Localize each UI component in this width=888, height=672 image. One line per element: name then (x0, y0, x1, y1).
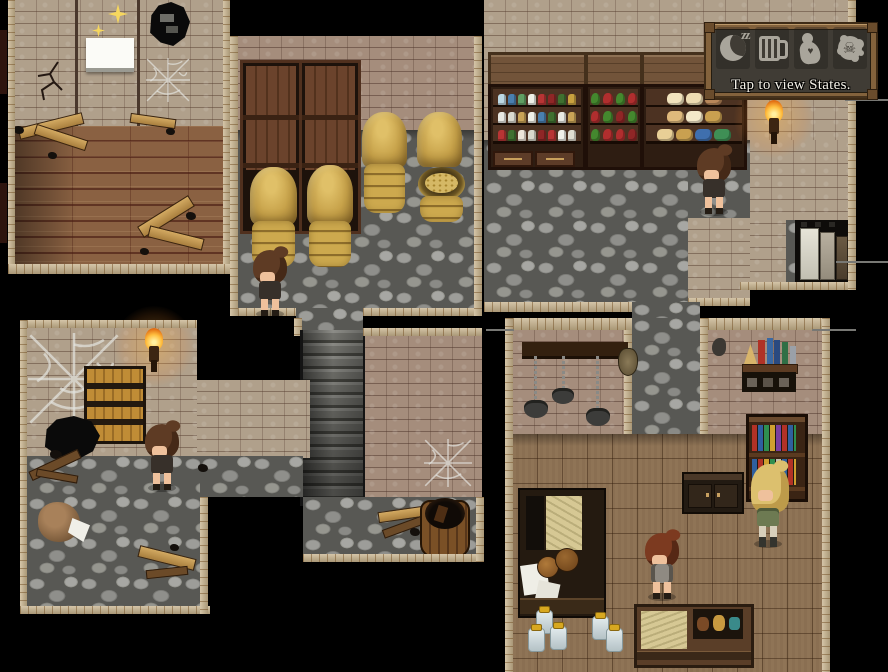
drink-icon (755, 27, 789, 69)
map-connector-line (812, 329, 856, 331)
shelf-item (538, 94, 546, 105)
tray-item (697, 617, 709, 631)
alcove (795, 220, 848, 282)
appliance-brown (836, 236, 848, 280)
shelf-item (558, 112, 566, 123)
brick-wall (197, 380, 310, 458)
shelf-item (508, 94, 516, 105)
broken-barrel (420, 500, 470, 558)
vent (801, 222, 807, 227)
figure-icon: ♥ (794, 27, 828, 69)
states-panel-caption: Tap to view States. (706, 77, 876, 94)
states-panel[interactable]: zz ♥ ☠ Tap to view States. (704, 22, 878, 100)
grain-sack (362, 112, 407, 168)
shelf-row (590, 89, 638, 105)
rubble-rock (198, 464, 208, 472)
map-connector-line (486, 329, 514, 331)
chain (562, 356, 565, 392)
shelf-book (774, 340, 780, 364)
rubble-rock (140, 248, 149, 255)
shelf-item (518, 112, 526, 123)
shelf-book (782, 342, 788, 364)
map-edge-fragment (0, 30, 7, 94)
grain-sack (364, 164, 405, 213)
room-border (8, 264, 230, 274)
wall-crack (28, 60, 68, 102)
shelf-item (548, 112, 556, 123)
room-border (8, 0, 15, 272)
room-border (624, 318, 632, 436)
cobblestone-path (632, 318, 700, 438)
drawer[interactable] (535, 151, 575, 167)
shelf-row (590, 125, 638, 141)
shelf-item (548, 130, 556, 141)
stone-trim (786, 220, 795, 282)
rubble-rock (48, 152, 57, 159)
tray-item (729, 617, 740, 630)
shelf-item (548, 94, 556, 105)
vent (829, 222, 835, 227)
beer-mug-shape (759, 36, 780, 61)
figure-shape: ♥ (799, 33, 825, 65)
shelf-item (498, 94, 506, 105)
hanging-pot (552, 388, 574, 404)
shelf-item (628, 111, 637, 123)
room-study (505, 318, 830, 672)
shelf-item (528, 130, 536, 141)
hanging-pot (524, 400, 548, 418)
sleep-icon: zz (716, 27, 750, 69)
cabinet-top (684, 474, 742, 480)
rubble-rock (166, 128, 175, 135)
appliance-grey (820, 232, 835, 280)
room-border (27, 320, 197, 328)
shelf-item (508, 130, 516, 141)
wall-seam (75, 0, 78, 126)
lumber-band (87, 383, 143, 389)
hanging-gourd (618, 348, 638, 376)
shelf-item (508, 112, 516, 123)
room-border (20, 606, 210, 614)
shelf-item (705, 111, 722, 123)
room-border (700, 318, 708, 436)
room-grain-storage (230, 36, 482, 316)
shelf-item (558, 94, 566, 105)
shelf-item (528, 112, 536, 123)
appliance-white (800, 228, 819, 280)
stored-box (779, 378, 789, 387)
shelf-item (498, 112, 506, 123)
bottle-shelf (585, 84, 643, 170)
wall-seam (137, 0, 140, 126)
shelf-item (686, 111, 703, 123)
stored-box (763, 378, 773, 387)
shelf-item (628, 129, 637, 141)
cabinet-handle (717, 493, 720, 497)
room-border (303, 554, 482, 562)
wall-hole-bricks (166, 26, 178, 33)
character-villager-storage[interactable] (250, 248, 290, 318)
room-border (476, 497, 484, 562)
room-border (505, 318, 632, 330)
room-border (822, 318, 830, 672)
character-adventurer-blonde[interactable] (748, 462, 788, 548)
shelf-item (498, 130, 506, 141)
vent (815, 222, 821, 227)
shelf-item (628, 93, 637, 105)
shelf-item (616, 129, 625, 141)
skull-splat-shape: ☠ (838, 36, 862, 60)
desk-slot (526, 496, 544, 550)
shelf-item (686, 93, 703, 105)
shelf-item (667, 111, 684, 123)
shelf-drawers (490, 151, 578, 167)
shelf-item (603, 111, 612, 123)
poison-icon: ☠ (833, 27, 867, 69)
grain-sack (417, 112, 462, 167)
shelf-item (558, 130, 566, 141)
shelf-row (493, 125, 581, 141)
wall-bird (712, 338, 726, 356)
hanging-pot (586, 408, 610, 426)
table-tray (693, 609, 743, 639)
rubble-rock (170, 544, 179, 551)
shelf-divider (749, 453, 805, 457)
shelf-item (616, 93, 625, 105)
drawer[interactable] (493, 151, 533, 167)
cabinet-handle (706, 493, 709, 497)
grain (425, 173, 458, 193)
sleep-zz: zz (741, 27, 749, 43)
cabinet (682, 472, 744, 514)
clay-jug (555, 548, 579, 572)
room-border (505, 318, 513, 672)
tray-item (713, 615, 725, 631)
table-map (641, 611, 687, 649)
panel-rail (243, 115, 299, 120)
wall-hole-bricks (160, 14, 174, 22)
spider-web (142, 58, 194, 102)
room-border (363, 328, 482, 336)
shelf-book (790, 346, 796, 364)
shelf-item (538, 112, 546, 123)
character-villager-study[interactable] (642, 531, 682, 601)
wall-torch (760, 100, 788, 150)
storage-jar (606, 628, 623, 652)
shelf-item (528, 94, 536, 105)
room-border (740, 282, 856, 290)
book-row (752, 425, 796, 451)
shelf-item (695, 129, 712, 141)
shelf-row (646, 125, 742, 141)
shelf-item (591, 129, 600, 141)
shelf-row (493, 107, 581, 123)
rubble-rock (186, 212, 196, 220)
rubble-rock (410, 528, 420, 536)
shelf-item (657, 129, 674, 141)
character-villager-shop[interactable] (694, 146, 734, 216)
room-border (200, 497, 208, 614)
map-connector-line (836, 261, 888, 263)
grain-sack (307, 165, 353, 225)
room-border (474, 36, 482, 316)
hanging-beam (522, 342, 628, 359)
shelf-item (538, 130, 546, 141)
character-villager-cellar[interactable] (142, 422, 182, 492)
shelf-item (518, 130, 526, 141)
shelf-item (591, 111, 600, 123)
room-border (230, 36, 238, 316)
shelf-book (767, 338, 773, 364)
storage-jar (550, 626, 567, 650)
grain-sack (309, 221, 351, 267)
shelf-item (603, 129, 612, 141)
grain-sack (250, 167, 297, 225)
floor-shadow (15, 126, 77, 264)
grain-sack (420, 196, 463, 222)
cobblestone-floor (200, 456, 303, 497)
bookshelf-top (749, 417, 805, 422)
room-border (363, 308, 474, 316)
lumber-band (87, 419, 143, 425)
rubble-rock (14, 126, 24, 134)
shelf-item (568, 130, 576, 141)
shelf-item (568, 112, 576, 123)
desk-map (546, 496, 582, 550)
shelf-row (646, 107, 742, 123)
shelf-book (758, 340, 765, 364)
under-shelf (742, 372, 796, 392)
shelf-row (590, 107, 638, 123)
desk-front (520, 598, 604, 614)
shelf-item (676, 129, 693, 141)
heart-mark: ♥ (808, 47, 814, 57)
shelf-item (568, 94, 576, 105)
stored-box (747, 378, 757, 387)
panel-rail (302, 115, 358, 120)
notice-desk (518, 488, 606, 618)
shelf-item (518, 94, 526, 105)
shelf-row (493, 89, 581, 105)
shelf-item (667, 93, 684, 105)
room-border (484, 302, 632, 312)
storage-jar (528, 628, 545, 652)
room-cellar (20, 318, 484, 616)
status-icon-row: zz ♥ ☠ (710, 27, 872, 69)
table-apron (637, 651, 751, 660)
spider-web (424, 438, 472, 488)
room-border (20, 320, 27, 614)
game-viewport: zz ♥ ☠ Tap to view States. (0, 0, 888, 672)
notice-sign (86, 38, 134, 72)
room-border (223, 0, 230, 272)
shelf-item (591, 93, 600, 105)
chain (534, 356, 537, 404)
map-table (634, 604, 754, 668)
shelf-item (714, 129, 731, 141)
room-ruined (8, 0, 230, 280)
lumber-band (87, 401, 143, 407)
chain (596, 356, 599, 412)
shelf-item (603, 93, 612, 105)
map-edge-fragment (0, 183, 7, 243)
shelf-item (616, 111, 625, 123)
